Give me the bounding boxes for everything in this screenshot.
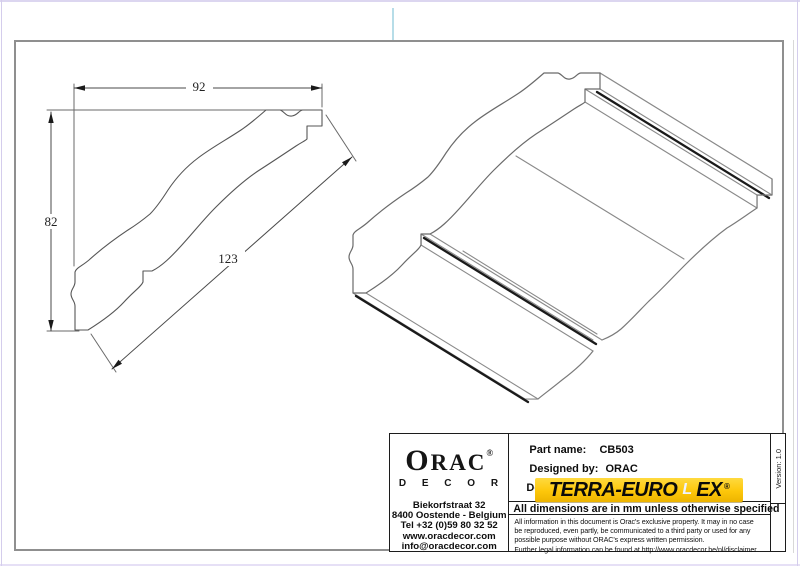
designed-by-value: ORAC [605, 463, 637, 475]
address-email: info@oracdecor.com [392, 542, 507, 552]
part-name-label: Part name: [529, 444, 596, 456]
isometric-view [349, 73, 772, 402]
svg-text:82: 82 [45, 214, 58, 229]
svg-text:123: 123 [218, 251, 238, 266]
orac-logo-decor: D E C O R [399, 478, 505, 489]
terra-eurolex-registered-mark: ® [724, 482, 730, 491]
terra-eurolex-text-right: EX [696, 480, 722, 500]
orac-logo-o: O [405, 444, 430, 477]
version-column: Version: 1.0 [770, 434, 785, 551]
title-block-main: Part name: CB503 Designed by: ORAC De TE… [509, 434, 770, 551]
designed-by-row: Designed by: ORAC [529, 463, 637, 475]
version-label: Version: 1.0 [774, 449, 783, 489]
orac-logo-block: ORAC® D E C O R Biekorfstraat 32 8400 Oo… [390, 434, 509, 551]
orac-logo: ORAC® [405, 442, 493, 477]
profile-section-view: 92 82 123 [39, 79, 356, 372]
terra-eurolex-l-box: L [678, 480, 696, 500]
profile-outline [71, 110, 322, 330]
legal-line: All information in this document is Orac… [514, 517, 771, 526]
terra-eurolex-logo: TERRA-EUROLEX® [535, 478, 743, 502]
legal-notice: All information in this document is Orac… [509, 514, 771, 553]
orac-logo-rac: RAC [431, 450, 487, 475]
title-block: ORAC® D E C O R Biekorfstraat 32 8400 Oo… [389, 433, 786, 552]
designed-by-label: Designed by: [529, 463, 602, 475]
company-address: Biekorfstraat 32 8400 Oostende - Belgium… [392, 501, 507, 552]
legal-line: be reproduced, even partly, be communica… [514, 526, 771, 535]
legal-line: possible purpose without ORAC's express … [514, 535, 771, 544]
dimensions-note: All dimensions are in mm unless otherwis… [509, 501, 771, 514]
version-cell: Version: 1.0 [771, 434, 785, 504]
terra-eurolex-text-left: TERRA-EURO [549, 480, 677, 500]
svg-text:92: 92 [193, 79, 206, 94]
registered-mark: ® [486, 448, 493, 458]
part-name-row: Part name: CB503 [529, 444, 633, 456]
dimension-82: 82 [39, 112, 63, 331]
part-name-value: CB503 [599, 444, 633, 456]
dimension-92: 92 [74, 79, 322, 94]
legal-line: Further legal information can be found a… [514, 545, 771, 554]
